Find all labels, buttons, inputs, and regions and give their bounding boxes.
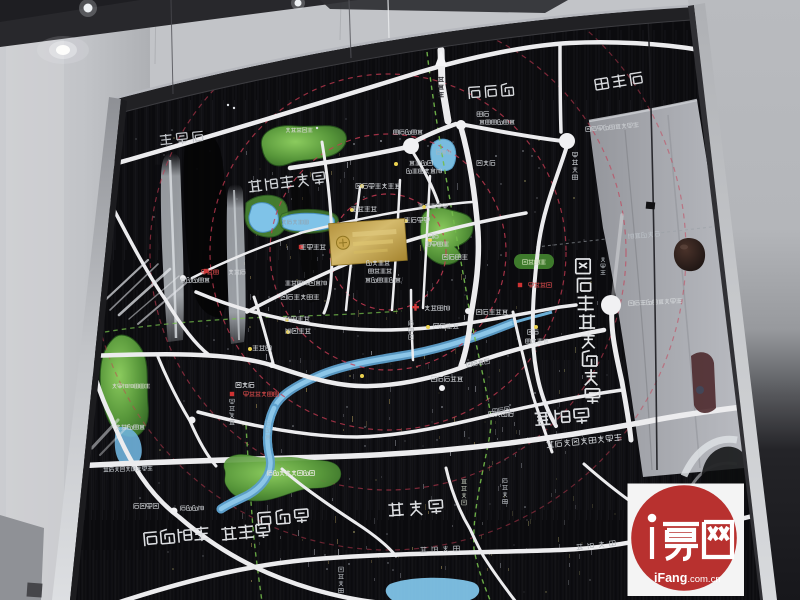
- svg-text:iFang.com.cn: iFang.com.cn: [654, 571, 721, 585]
